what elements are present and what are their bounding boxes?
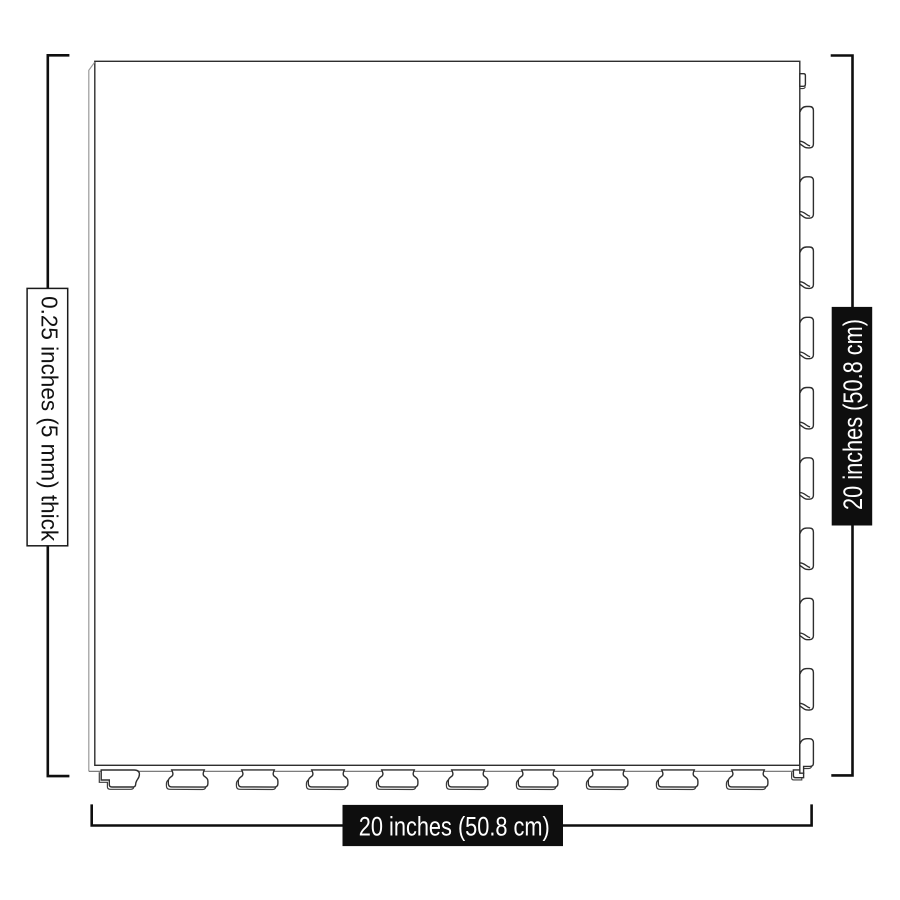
svg-text:0.25 inches (5 mm) thick: 0.25 inches (5 mm) thick (36, 296, 62, 541)
svg-text:20 inches (50.8 cm): 20 inches (50.8 cm) (359, 812, 550, 842)
svg-text:20 inches (50.8 cm): 20 inches (50.8 cm) (838, 319, 868, 510)
